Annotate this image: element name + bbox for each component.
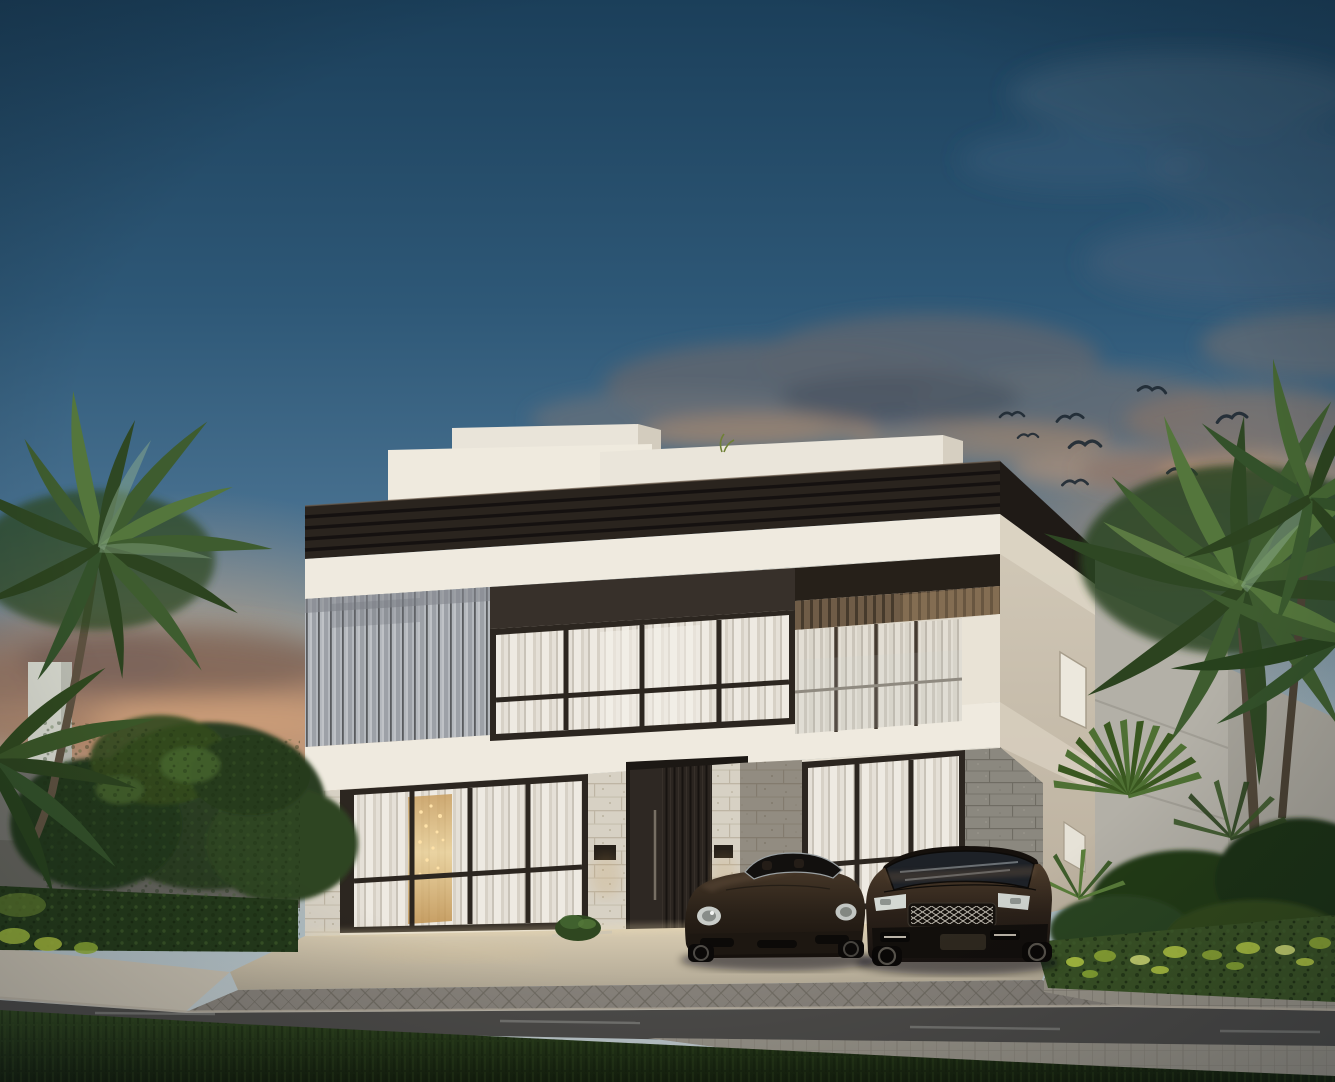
scene-canvas	[0, 0, 1335, 1082]
vignette	[0, 0, 1335, 1082]
villa-dusk-rendering	[0, 0, 1335, 1082]
